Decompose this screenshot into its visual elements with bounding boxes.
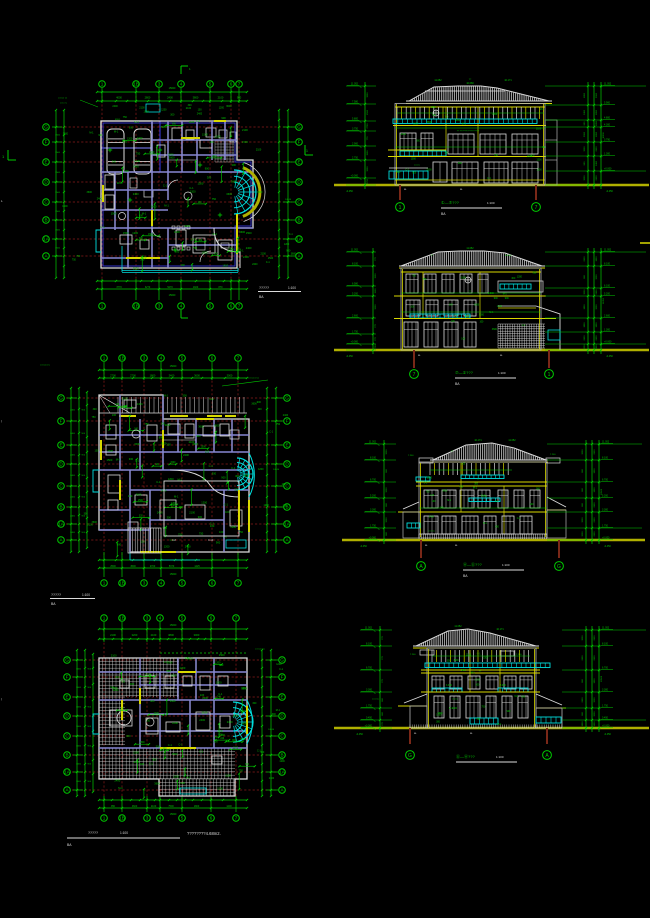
- svg-text:5.900: 5.900: [604, 102, 611, 105]
- svg-text:1500: 1500: [479, 315, 485, 317]
- svg-text:1200: 1200: [226, 805, 232, 808]
- svg-text:300: 300: [212, 471, 217, 475]
- svg-text:3000: 3000: [375, 304, 377, 310]
- svg-text:1200: 1200: [168, 153, 174, 157]
- svg-text:900: 900: [166, 669, 171, 673]
- svg-text:4.300: 4.300: [604, 124, 611, 127]
- svg-text:M-1: M-1: [209, 397, 214, 401]
- svg-text:????????4.68m2.: ????????4.68m2.: [187, 831, 221, 836]
- svg-text:2400: 2400: [530, 155, 536, 157]
- svg-text:3600: 3600: [454, 660, 460, 662]
- svg-text:1500: 1500: [222, 264, 228, 268]
- svg-text:1200: 1200: [264, 504, 270, 507]
- svg-text:2400: 2400: [112, 105, 118, 108]
- svg-text:BA: BA: [51, 602, 56, 606]
- svg-text:C-1: C-1: [156, 480, 161, 484]
- svg-text:C-1: C-1: [269, 430, 274, 433]
- svg-text:2400: 2400: [594, 635, 596, 641]
- svg-text:1.750: 1.750: [352, 331, 359, 334]
- svg-text:750: 750: [136, 152, 141, 156]
- svg-text:3000: 3000: [76, 781, 82, 783]
- svg-text:+0.000: +0.000: [602, 537, 610, 540]
- svg-text:1500: 1500: [214, 424, 220, 428]
- svg-text:F: F: [45, 140, 48, 145]
- svg-text:10.171: 10.171: [474, 439, 482, 442]
- svg-text:1200: 1200: [161, 108, 167, 111]
- svg-text:15840: 15840: [170, 813, 177, 816]
- svg-text:1: 1: [101, 304, 104, 309]
- svg-text:3: 3: [158, 82, 161, 87]
- svg-text:2100: 2100: [536, 129, 542, 131]
- svg-text:100: 100: [112, 413, 117, 417]
- svg-text:3000: 3000: [584, 344, 586, 350]
- svg-text:C-1: C-1: [163, 183, 168, 187]
- svg-text:2400: 2400: [596, 335, 598, 341]
- svg-text:1200: 1200: [202, 251, 208, 255]
- svg-text:11052: 11052: [603, 297, 605, 304]
- svg-text:????????: ????????: [40, 365, 51, 367]
- svg-text:2400: 2400: [582, 655, 584, 661]
- svg-text:??????: ??????: [428, 531, 436, 533]
- svg-text:11.052: 11.052: [604, 83, 612, 86]
- svg-text:6: 6: [211, 581, 214, 586]
- svg-text:2400: 2400: [594, 502, 596, 508]
- svg-text:1: 1: [101, 82, 104, 87]
- svg-text:2400: 2400: [594, 517, 596, 523]
- svg-text:100: 100: [95, 449, 100, 452]
- svg-text:1200: 1200: [149, 152, 155, 154]
- svg-text:①—⑦???: ①—⑦???: [441, 200, 460, 205]
- svg-text:1B: 1B: [133, 304, 139, 309]
- svg-text:7: 7: [238, 304, 241, 309]
- svg-text:1800: 1800: [596, 120, 598, 126]
- svg-text:1B: 1B: [133, 82, 139, 87]
- svg-text:M-1: M-1: [116, 458, 121, 462]
- svg-text:1500: 1500: [219, 653, 225, 657]
- svg-text:2400: 2400: [596, 146, 598, 152]
- svg-text:2100: 2100: [165, 423, 171, 427]
- svg-text:1500: 1500: [202, 132, 208, 136]
- svg-text:3.300: 3.300: [500, 685, 506, 687]
- svg-text:1A: 1A: [64, 770, 71, 775]
- svg-text:1200: 1200: [137, 136, 143, 140]
- svg-text:C-1: C-1: [178, 742, 183, 746]
- svg-text:300: 300: [167, 516, 172, 520]
- svg-text:870: 870: [219, 286, 224, 289]
- svg-text:300: 300: [129, 457, 134, 461]
- svg-text:300: 300: [84, 512, 89, 515]
- svg-text:1500: 1500: [242, 140, 248, 144]
- svg-text:2100: 2100: [151, 633, 157, 637]
- svg-text:E: E: [44, 160, 47, 165]
- svg-text:Ⓖ—Ⓐ???: Ⓖ—Ⓐ???: [456, 753, 475, 759]
- svg-text:BA: BA: [67, 843, 72, 847]
- svg-text:750: 750: [199, 532, 204, 536]
- svg-text:F: F: [60, 419, 63, 424]
- svg-text:1800: 1800: [584, 304, 586, 310]
- svg-text:1500: 1500: [55, 152, 61, 154]
- svg-text:BA: BA: [463, 574, 468, 578]
- svg-text:10.171: 10.171: [496, 628, 504, 631]
- svg-text:?? ????????????????: ?? ????????????????: [457, 131, 480, 133]
- svg-text:3000: 3000: [76, 669, 82, 671]
- svg-text:5: 5: [209, 82, 212, 87]
- svg-text:4000: 4000: [116, 95, 122, 99]
- svg-text:?????: ?????: [259, 286, 269, 290]
- svg-text:1200: 1200: [517, 276, 523, 278]
- svg-text:11.052: 11.052: [466, 247, 474, 250]
- svg-text:5.200: 5.200: [352, 293, 359, 296]
- svg-text:300: 300: [152, 757, 157, 761]
- svg-text:B: B: [59, 505, 62, 510]
- svg-text:C-1: C-1: [199, 750, 204, 754]
- svg-text:2400: 2400: [70, 532, 76, 534]
- svg-text:300: 300: [156, 745, 161, 749]
- svg-text:1800: 1800: [596, 256, 598, 262]
- svg-text:1200: 1200: [465, 316, 471, 318]
- svg-text:1:100: 1:100: [288, 286, 296, 290]
- svg-text:900: 900: [286, 249, 291, 252]
- svg-text:C-1: C-1: [289, 233, 294, 236]
- svg-text:300: 300: [185, 656, 190, 660]
- svg-text:5.200: 5.200: [604, 293, 611, 296]
- svg-text:1.750: 1.750: [602, 525, 609, 528]
- svg-text:2400: 2400: [243, 474, 249, 478]
- svg-text:300: 300: [235, 474, 240, 478]
- svg-text:300: 300: [272, 713, 277, 716]
- svg-text:??????: ??????: [372, 699, 380, 701]
- svg-text:14240: 14240: [285, 199, 292, 201]
- svg-text:2400: 2400: [429, 516, 435, 518]
- svg-text:3600: 3600: [442, 490, 448, 492]
- svg-text:KW-1: KW-1: [115, 119, 121, 121]
- svg-text:C-1: C-1: [257, 750, 262, 753]
- svg-text:BA: BA: [259, 295, 264, 299]
- svg-text:3.300: 3.300: [370, 509, 377, 512]
- svg-text:2100: 2100: [466, 655, 472, 657]
- svg-text:10.171: 10.171: [504, 79, 512, 82]
- svg-text:2400: 2400: [70, 410, 76, 412]
- svg-text:10500: 10500: [601, 675, 603, 682]
- svg-text:2400: 2400: [582, 697, 584, 703]
- svg-text:-0.450: -0.450: [356, 733, 363, 736]
- svg-text:1: 1: [103, 816, 106, 821]
- svg-text:1200: 1200: [144, 674, 150, 676]
- svg-text:300: 300: [170, 114, 175, 117]
- svg-text:300: 300: [182, 393, 187, 397]
- svg-text:100: 100: [282, 483, 287, 486]
- svg-text:3000: 3000: [76, 746, 82, 748]
- svg-text:2400: 2400: [70, 516, 76, 518]
- svg-text:300: 300: [252, 702, 257, 705]
- svg-text:11.052: 11.052: [434, 79, 442, 82]
- svg-text:Ⓐ—Ⓖ???: Ⓐ—Ⓖ???: [463, 561, 482, 567]
- svg-text:2100: 2100: [233, 714, 239, 718]
- svg-text:1B: 1B: [119, 816, 125, 821]
- svg-text:1.750: 1.750: [370, 525, 377, 528]
- svg-text:1200: 1200: [212, 156, 218, 158]
- svg-text:3600: 3600: [63, 133, 69, 136]
- svg-text:1200: 1200: [180, 666, 186, 670]
- svg-text:B: B: [65, 753, 68, 758]
- svg-text:1500: 1500: [123, 231, 129, 235]
- svg-text:?????: ?????: [88, 831, 98, 835]
- svg-text:6: 6: [210, 816, 213, 821]
- svg-text:2100: 2100: [217, 787, 223, 791]
- svg-text:2400: 2400: [252, 263, 258, 266]
- svg-text:1:100: 1:100: [487, 201, 495, 205]
- svg-text:+0.000: +0.000: [604, 341, 612, 344]
- svg-text:10500: 10500: [603, 132, 605, 139]
- svg-text:1200: 1200: [233, 747, 239, 749]
- svg-text:2100: 2100: [186, 107, 192, 110]
- svg-text:?????: ?????: [452, 699, 458, 701]
- svg-text:2700: 2700: [367, 178, 369, 184]
- svg-text:+0.000: +0.000: [602, 725, 610, 728]
- svg-text:2100: 2100: [202, 710, 208, 714]
- svg-text:2400: 2400: [70, 497, 76, 499]
- svg-text:7.580: 7.580: [352, 101, 359, 104]
- svg-text:2.600: 2.600: [352, 315, 359, 318]
- svg-text:3600: 3600: [226, 192, 232, 196]
- svg-text:B: B: [44, 218, 47, 223]
- svg-text:3600: 3600: [198, 425, 204, 429]
- svg-text:300: 300: [221, 733, 226, 737]
- svg-text:2100: 2100: [133, 751, 139, 755]
- svg-text:3: 3: [146, 616, 149, 621]
- svg-text:2400: 2400: [183, 453, 189, 457]
- svg-text:?????: ?????: [51, 593, 61, 597]
- svg-text:3000: 3000: [596, 92, 598, 98]
- svg-text:100: 100: [219, 530, 224, 534]
- svg-text:1425: 1425: [194, 565, 200, 568]
- svg-text:1200: 1200: [164, 545, 170, 549]
- svg-text:1500: 1500: [144, 110, 150, 113]
- svg-text:2100: 2100: [218, 95, 224, 99]
- svg-text:1500: 1500: [375, 273, 377, 279]
- svg-text:3000: 3000: [76, 764, 82, 766]
- svg-text:3000: 3000: [596, 304, 598, 310]
- svg-text:2400: 2400: [70, 475, 76, 477]
- svg-text:3000: 3000: [76, 707, 82, 709]
- svg-text:1500: 1500: [170, 699, 176, 703]
- svg-text:3600: 3600: [226, 105, 232, 108]
- svg-text:2400: 2400: [137, 402, 143, 406]
- svg-text:1500: 1500: [55, 230, 61, 232]
- svg-text:3270: 3270: [145, 286, 151, 289]
- svg-text:1200: 1200: [219, 107, 225, 110]
- svg-text:4: 4: [160, 581, 163, 586]
- svg-text:2400: 2400: [167, 95, 173, 99]
- svg-text:1500: 1500: [55, 248, 61, 250]
- svg-text:6: 6: [230, 304, 233, 309]
- svg-text:2100: 2100: [461, 277, 467, 279]
- svg-text:900: 900: [159, 436, 164, 440]
- svg-text:3800: 3800: [193, 95, 199, 99]
- svg-text:E: E: [280, 695, 283, 700]
- svg-text:7: 7: [237, 356, 240, 361]
- svg-text:2400: 2400: [594, 531, 596, 537]
- svg-text:7.200: 7.200: [550, 454, 556, 456]
- svg-text:100: 100: [115, 675, 120, 679]
- svg-text:3000: 3000: [367, 92, 369, 98]
- svg-text:1: 1: [103, 356, 106, 361]
- svg-text:-0.450: -0.450: [346, 355, 353, 358]
- svg-text:1.750: 1.750: [602, 705, 609, 708]
- svg-text:M-1: M-1: [164, 204, 169, 208]
- svg-text:3000: 3000: [194, 633, 200, 637]
- svg-text:100: 100: [225, 510, 230, 514]
- svg-text:950: 950: [111, 805, 116, 808]
- svg-text:1800: 1800: [596, 344, 598, 350]
- svg-text:3000: 3000: [386, 449, 388, 455]
- svg-text:1500: 1500: [138, 500, 144, 502]
- svg-text:6.580: 6.580: [352, 283, 359, 286]
- svg-text:5.200: 5.200: [370, 495, 377, 498]
- svg-text:750: 750: [212, 197, 217, 201]
- svg-text:M-1: M-1: [134, 120, 139, 124]
- svg-text:-0.450: -0.450: [360, 545, 367, 548]
- svg-text:11.052: 11.052: [508, 439, 516, 442]
- svg-text:1200: 1200: [132, 231, 138, 235]
- svg-text:3.300: 3.300: [446, 685, 452, 687]
- svg-text:750: 750: [239, 768, 244, 772]
- svg-text:3000: 3000: [227, 373, 233, 377]
- svg-text:10500: 10500: [601, 488, 603, 495]
- svg-text:3800: 3800: [168, 633, 174, 637]
- svg-text:100: 100: [161, 422, 166, 426]
- svg-text:2700: 2700: [130, 373, 136, 377]
- svg-text:1200: 1200: [154, 713, 160, 715]
- svg-text:2100: 2100: [215, 135, 221, 139]
- svg-text:C-1: C-1: [196, 119, 201, 123]
- svg-text:6.700: 6.700: [366, 667, 373, 670]
- svg-text:F: F: [66, 675, 69, 680]
- svg-text:G: G: [59, 396, 63, 401]
- svg-text:300: 300: [112, 160, 117, 164]
- svg-text:1A: 1A: [284, 522, 291, 527]
- svg-text:7: 7: [235, 816, 238, 821]
- svg-text:300: 300: [196, 434, 201, 438]
- svg-text:1200: 1200: [172, 721, 178, 725]
- svg-text:11.052: 11.052: [369, 441, 377, 444]
- svg-text:1B: 1B: [119, 356, 125, 361]
- svg-text:2400: 2400: [199, 718, 205, 722]
- svg-text:11.052: 11.052: [604, 249, 612, 252]
- svg-text:2700: 2700: [367, 123, 369, 129]
- svg-text:1500: 1500: [55, 192, 61, 194]
- svg-text:6.100: 6.100: [604, 285, 611, 288]
- svg-text:2100: 2100: [111, 653, 117, 657]
- svg-text:3400: 3400: [169, 373, 175, 377]
- svg-text:2400: 2400: [114, 779, 120, 783]
- svg-text:3600: 3600: [231, 179, 237, 183]
- svg-text:1500: 1500: [367, 109, 369, 115]
- svg-text:3600: 3600: [257, 191, 263, 194]
- svg-text:1500: 1500: [62, 205, 68, 208]
- svg-text:8.100: 8.100: [370, 457, 377, 460]
- svg-text:1.750: 1.750: [366, 705, 373, 708]
- svg-text:4: 4: [180, 304, 183, 309]
- svg-text:1200: 1200: [189, 120, 195, 124]
- svg-text:2400: 2400: [474, 305, 480, 307]
- svg-text:15840: 15840: [170, 573, 177, 576]
- svg-text:2.600: 2.600: [488, 293, 494, 295]
- svg-text:11.052: 11.052: [351, 83, 359, 86]
- svg-text:300: 300: [150, 699, 155, 703]
- svg-text:+0.000: +0.000: [604, 168, 612, 171]
- svg-text:7: 7: [237, 581, 240, 586]
- svg-text:1200: 1200: [537, 169, 543, 171]
- svg-text:G: G: [557, 564, 561, 570]
- svg-text:4: 4: [160, 356, 163, 361]
- svg-text:900: 900: [221, 116, 226, 120]
- svg-text:1200: 1200: [174, 230, 180, 234]
- svg-text:15840: 15840: [169, 87, 176, 90]
- svg-text:4: 4: [180, 82, 183, 87]
- svg-text:3.300: 3.300: [602, 509, 609, 512]
- svg-text:BA: BA: [441, 212, 446, 216]
- svg-text:????? ??: ????? ??: [58, 98, 68, 100]
- svg-text:2400: 2400: [70, 455, 76, 457]
- svg-text:4: 4: [159, 616, 162, 621]
- svg-text:11.052: 11.052: [351, 249, 359, 252]
- svg-text:8.100: 8.100: [352, 263, 359, 266]
- svg-text:3600: 3600: [194, 373, 200, 377]
- svg-text:7.200: 7.200: [410, 654, 416, 656]
- svg-text:6.700: 6.700: [370, 479, 377, 482]
- svg-text:8.100: 8.100: [602, 457, 609, 460]
- svg-text:2800: 2800: [145, 95, 151, 99]
- svg-text:6: 6: [210, 616, 213, 621]
- svg-text:3600: 3600: [427, 122, 433, 124]
- svg-text:2400: 2400: [596, 160, 598, 166]
- svg-text:1200: 1200: [173, 774, 179, 778]
- svg-text:1800: 1800: [596, 131, 598, 137]
- svg-text:2100: 2100: [269, 777, 275, 780]
- svg-text:300: 300: [93, 408, 98, 411]
- svg-text:2400: 2400: [584, 109, 586, 115]
- svg-text:E: E: [285, 443, 288, 448]
- svg-text:????????: ????????: [255, 649, 266, 651]
- svg-text:1200: 1200: [475, 679, 481, 681]
- svg-text:C-1: C-1: [209, 464, 214, 468]
- svg-text:750: 750: [76, 255, 81, 258]
- svg-text:7500: 7500: [168, 805, 174, 808]
- svg-text:E: E: [59, 443, 62, 448]
- svg-text:3600: 3600: [291, 253, 297, 256]
- svg-text:3000: 3000: [582, 517, 584, 523]
- svg-text:6.700: 6.700: [602, 667, 609, 670]
- svg-text:750: 750: [123, 116, 128, 119]
- svg-text:6: 6: [211, 356, 214, 361]
- svg-text:1800: 1800: [194, 805, 200, 808]
- svg-text:750: 750: [144, 422, 149, 426]
- svg-text:M-1: M-1: [174, 494, 179, 498]
- svg-text:M-1: M-1: [213, 232, 218, 236]
- svg-text:1500: 1500: [107, 458, 113, 462]
- svg-text:8.100: 8.100: [604, 263, 611, 266]
- svg-text:1800: 1800: [594, 721, 596, 727]
- svg-text:100: 100: [205, 450, 210, 454]
- svg-text:1500: 1500: [172, 752, 178, 756]
- svg-text:4: 4: [159, 816, 162, 821]
- svg-text:750: 750: [72, 259, 77, 262]
- svg-text:300: 300: [232, 163, 237, 167]
- svg-text:1200: 1200: [168, 477, 174, 481]
- svg-text:4.800: 4.800: [604, 117, 611, 120]
- svg-text:2400: 2400: [133, 192, 139, 196]
